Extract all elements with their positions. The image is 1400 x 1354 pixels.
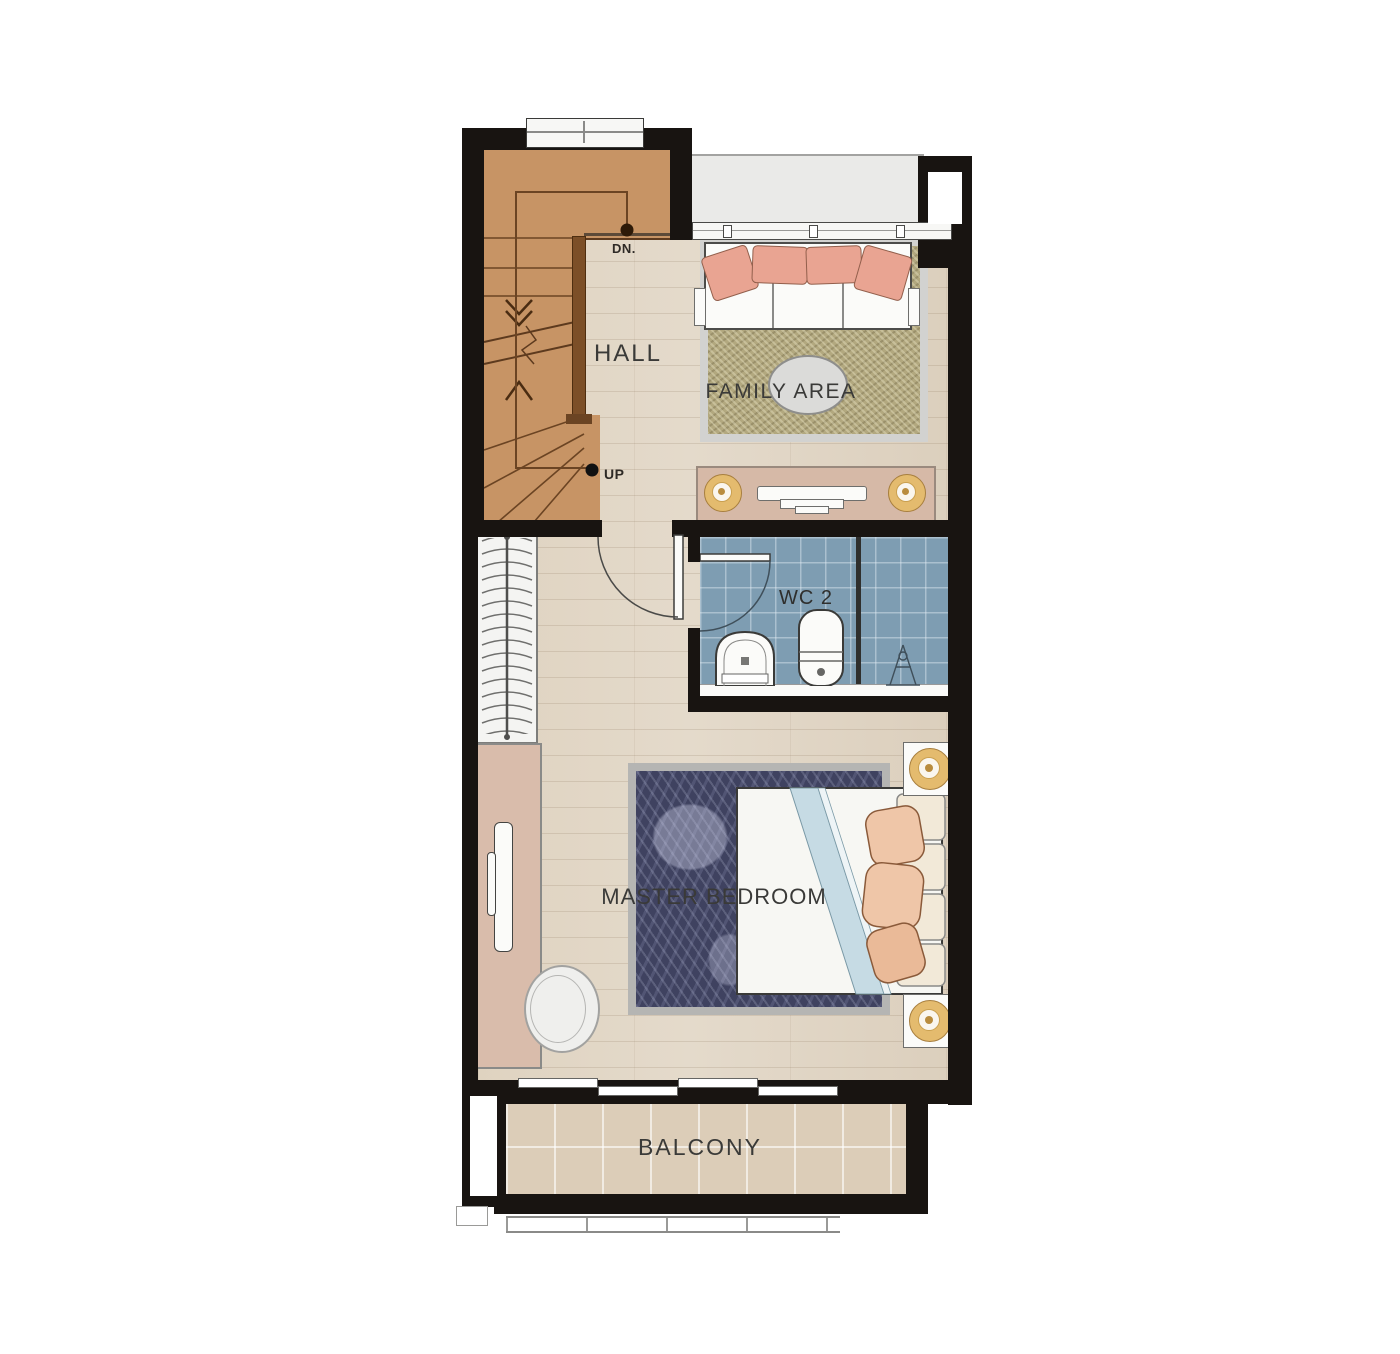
wall-wc-top xyxy=(672,520,972,537)
stair-railing-cap xyxy=(566,414,592,424)
balcony-label: BALCONY xyxy=(600,1136,800,1159)
wall-balcony-bottom xyxy=(494,1194,928,1214)
wardrobe-hangers xyxy=(476,530,538,744)
wall-right xyxy=(948,238,972,1105)
wall-niche-top-right xyxy=(928,172,962,224)
console-lamp-left xyxy=(704,474,742,512)
dresser-tv xyxy=(494,822,513,952)
dn-label: DN. xyxy=(612,242,636,255)
sofa-pillow xyxy=(751,245,808,285)
master-bedroom-label: MASTER BEDROOM xyxy=(584,886,844,908)
sofa-armrest-right xyxy=(908,288,920,326)
dresser-tv-mount xyxy=(487,852,496,916)
wall-left-lower xyxy=(462,522,478,1082)
bed-pillows xyxy=(861,804,929,986)
wc-door-leaf xyxy=(700,554,770,561)
nightstand-lamp xyxy=(909,1000,951,1042)
floor-plan: HALL FAMILY AREA WC 2 MASTER BEDROOM BAL… xyxy=(0,0,1400,1354)
tv-console xyxy=(696,466,936,522)
entry-step xyxy=(456,1206,488,1226)
wall-stair-right xyxy=(670,128,692,240)
stair-window xyxy=(526,118,644,148)
window-mullion xyxy=(896,225,905,238)
wc-label: WC 2 xyxy=(736,588,876,608)
up-label: UP xyxy=(604,467,624,481)
door-leaf xyxy=(674,535,683,619)
family-area-label: FAMILY AREA xyxy=(666,381,896,402)
stair-treads xyxy=(484,238,584,522)
console-lamp-right xyxy=(888,474,926,512)
hall-label: HALL xyxy=(558,342,698,366)
window-mullion xyxy=(723,225,732,238)
dn-dot xyxy=(621,224,634,237)
open-ledge xyxy=(684,154,924,228)
wall-wc-bottom xyxy=(688,696,972,712)
wall-stair-left xyxy=(462,128,484,522)
bedroom-door xyxy=(580,520,700,630)
family-window-band xyxy=(692,222,952,240)
wc-fixtures xyxy=(700,537,950,686)
tv-base xyxy=(795,506,829,514)
balcony-sliding-door xyxy=(516,1076,840,1098)
nightstand-lamp xyxy=(909,748,951,790)
stair-railing xyxy=(572,236,586,420)
balcony-niche xyxy=(470,1096,497,1196)
stair-direction-arrows xyxy=(506,300,532,400)
vanity-chair-inner xyxy=(530,975,586,1043)
door-swing-arc xyxy=(598,537,678,617)
balcony-railing xyxy=(506,1216,840,1233)
up-dot xyxy=(586,464,599,477)
window-mullion xyxy=(809,225,818,238)
wc-shower-mixer xyxy=(886,645,920,685)
